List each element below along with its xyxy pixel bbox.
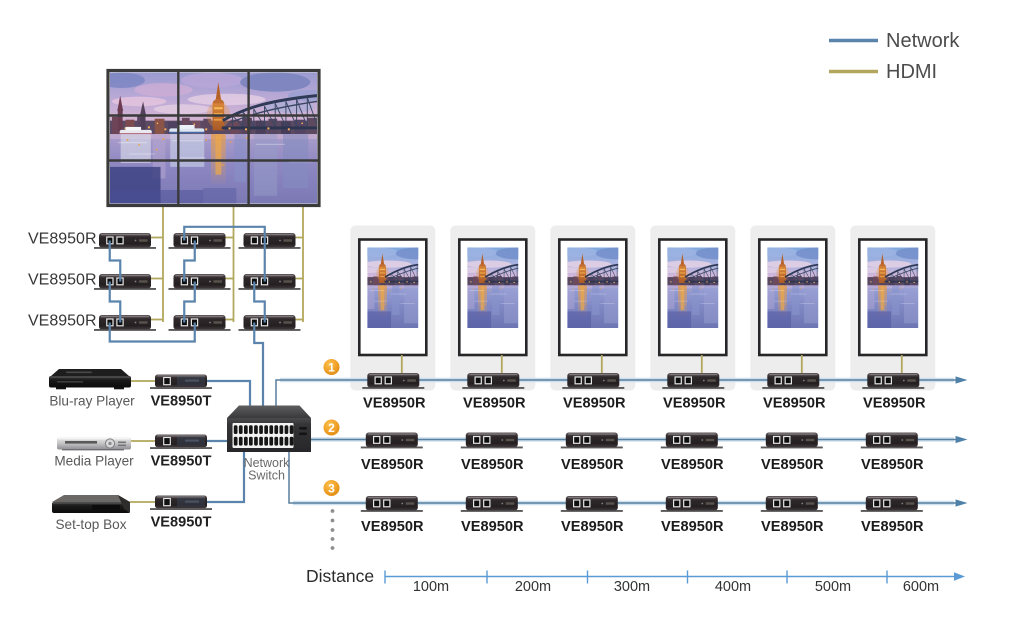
- svg-text:Set-top Box: Set-top Box: [55, 517, 126, 532]
- svg-text:VE8950R: VE8950R: [661, 519, 724, 535]
- svg-text:VE8950R: VE8950R: [861, 519, 924, 535]
- svg-text:2: 2: [328, 421, 335, 435]
- svg-text:VE8950R: VE8950R: [363, 396, 426, 412]
- svg-text:VE8950R: VE8950R: [763, 396, 826, 412]
- svg-text:Media Player: Media Player: [54, 454, 134, 469]
- svg-text:VE8950R: VE8950R: [563, 396, 626, 412]
- svg-text:Switch: Switch: [248, 469, 285, 483]
- svg-text:1: 1: [328, 361, 335, 375]
- svg-text:VE8950R: VE8950R: [561, 519, 624, 535]
- svg-text:500m: 500m: [815, 579, 851, 595]
- svg-text:VE8950R: VE8950R: [361, 519, 424, 535]
- svg-text:VE8950R: VE8950R: [661, 457, 724, 473]
- svg-text:VE8950R: VE8950R: [28, 231, 97, 248]
- svg-text:VE8950R: VE8950R: [663, 396, 726, 412]
- svg-text:VE8950T: VE8950T: [151, 454, 212, 470]
- svg-text:300m: 300m: [614, 579, 650, 595]
- svg-text:600m: 600m: [903, 579, 939, 595]
- svg-text:VE8950R: VE8950R: [28, 313, 97, 330]
- svg-text:Blu-ray Player: Blu-ray Player: [49, 394, 135, 409]
- svg-text:VE8950R: VE8950R: [863, 396, 926, 412]
- svg-text:Distance: Distance: [306, 566, 374, 586]
- svg-text:VE8950R: VE8950R: [28, 272, 97, 289]
- svg-text:VE8950R: VE8950R: [461, 519, 524, 535]
- svg-text:3: 3: [328, 482, 335, 496]
- svg-text:VE8950R: VE8950R: [761, 457, 824, 473]
- svg-text:VE8950R: VE8950R: [861, 457, 924, 473]
- svg-text:Network: Network: [886, 30, 960, 52]
- svg-text:VE8950R: VE8950R: [463, 396, 526, 412]
- svg-text:HDMI: HDMI: [886, 61, 937, 83]
- svg-text:VE8950R: VE8950R: [461, 457, 524, 473]
- svg-text:VE8950R: VE8950R: [561, 457, 624, 473]
- svg-text:VE8950T: VE8950T: [151, 394, 212, 410]
- svg-text:100m: 100m: [413, 579, 449, 595]
- svg-text:VE8950T: VE8950T: [151, 515, 212, 531]
- svg-text:VE8950R: VE8950R: [761, 519, 824, 535]
- svg-text:400m: 400m: [715, 579, 751, 595]
- svg-text:200m: 200m: [515, 579, 551, 595]
- svg-text:VE8950R: VE8950R: [361, 457, 424, 473]
